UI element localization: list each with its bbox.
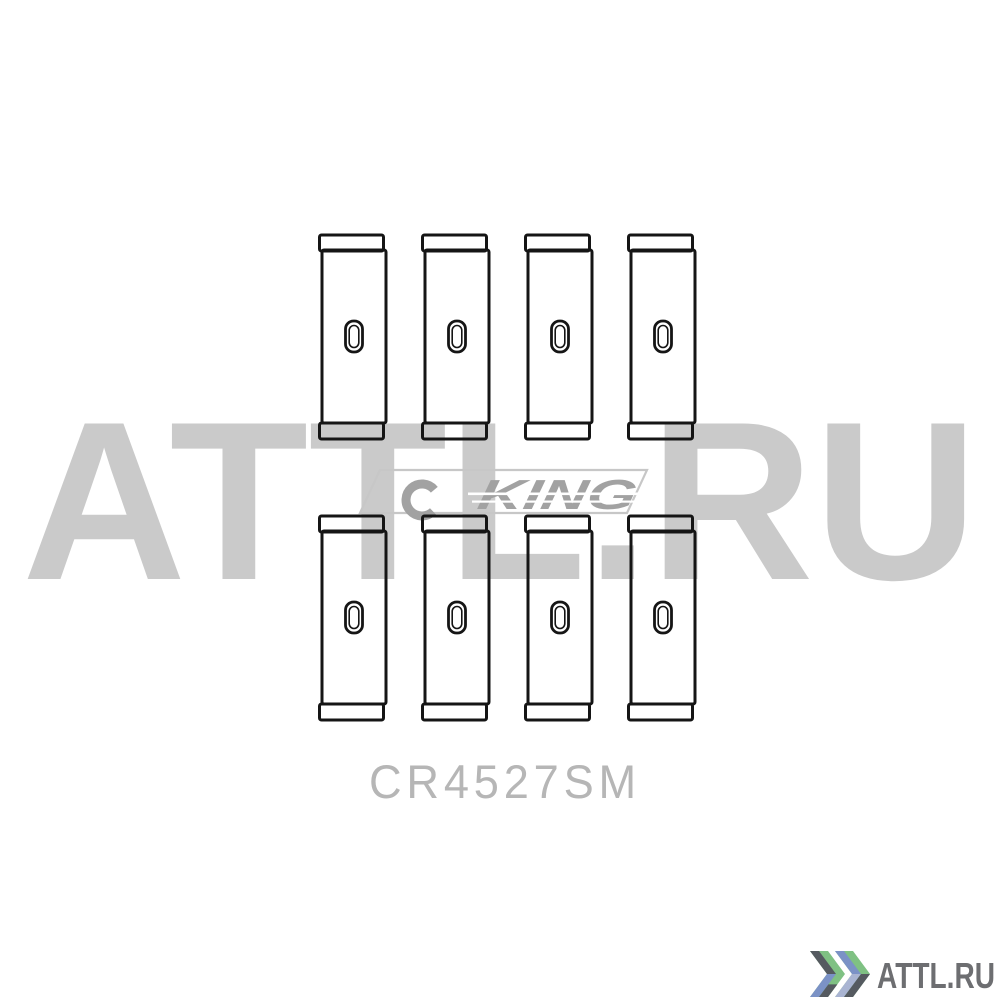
oil-hole-icon bbox=[452, 326, 462, 348]
oil-hole-icon bbox=[555, 326, 565, 348]
bearing-lip-bottom bbox=[320, 704, 384, 720]
bearing-lip-bottom bbox=[423, 704, 487, 720]
bearing-lip-bottom bbox=[629, 704, 693, 720]
king-logo-slit bbox=[468, 493, 640, 496]
bearing-lip-bottom bbox=[526, 704, 590, 720]
oil-hole-icon bbox=[658, 326, 668, 348]
site-chevrons-icon bbox=[810, 951, 870, 997]
part-number: CR4527SM bbox=[369, 755, 641, 808]
king-logo-slit bbox=[472, 501, 640, 503]
drawing-canvas: ATTL.RU KING CR4527SM bbox=[0, 0, 1000, 1000]
site-logo: ATTL.RU bbox=[810, 951, 995, 997]
site-logo-text: ATTL.RU bbox=[877, 955, 995, 996]
oil-hole-icon bbox=[349, 326, 359, 348]
product-image: ATTL.RU KING CR4527SM bbox=[0, 0, 1000, 1000]
